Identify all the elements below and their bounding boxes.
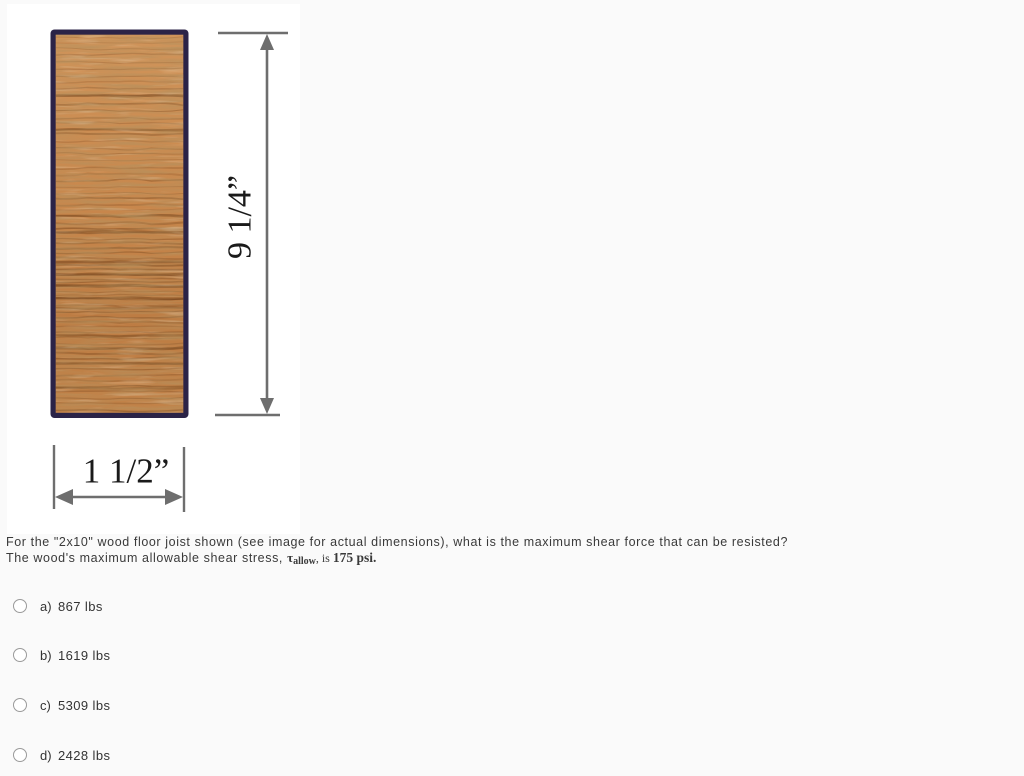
svg-text:1 1/2”: 1 1/2”	[83, 452, 170, 491]
svg-text:9 1/4”: 9 1/4”	[222, 175, 259, 259]
